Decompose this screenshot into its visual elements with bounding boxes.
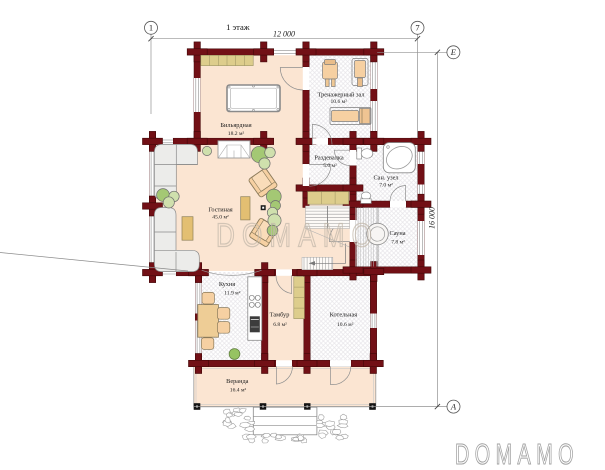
- svg-text:Тренажерный зал: Тренажерный зал: [318, 91, 365, 98]
- svg-text:Раздевалка: Раздевалка: [314, 155, 344, 162]
- svg-text:12 000: 12 000: [273, 29, 295, 38]
- svg-text:Сауна: Сауна: [390, 230, 406, 237]
- svg-text:Тамбур: Тамбур: [270, 311, 290, 318]
- svg-text:6.8 м²: 6.8 м²: [273, 322, 287, 328]
- svg-text:1: 1: [149, 23, 153, 33]
- svg-text:DOMAMO: DOMAMO: [216, 217, 379, 254]
- svg-text:Котельная: Котельная: [330, 311, 358, 318]
- svg-text:E: E: [450, 47, 457, 57]
- svg-text:18.2 м²: 18.2 м²: [228, 131, 245, 137]
- svg-text:16 000: 16 000: [428, 207, 437, 229]
- svg-text:5.0 м²: 5.0 м²: [323, 163, 337, 169]
- svg-text:7.8 м²: 7.8 м²: [391, 239, 405, 245]
- svg-text:10.6 м²: 10.6 м²: [337, 322, 354, 328]
- svg-text:Бильярдная: Бильярдная: [220, 122, 251, 129]
- svg-text:11.9 м²: 11.9 м²: [224, 291, 241, 297]
- svg-text:Гостиная: Гостиная: [208, 206, 232, 213]
- svg-text:1 этаж: 1 этаж: [226, 22, 250, 32]
- svg-text:16.4 м²: 16.4 м²: [230, 387, 247, 393]
- svg-text:Сан. узел: Сан. узел: [373, 175, 398, 182]
- svg-text:Кухня: Кухня: [219, 281, 235, 288]
- svg-text:10.6 м²: 10.6 м²: [330, 99, 347, 105]
- svg-text:7: 7: [415, 23, 419, 33]
- svg-text:A: A: [450, 402, 457, 412]
- svg-text:Веранда: Веранда: [226, 378, 249, 385]
- svg-text:7.0 м²: 7.0 м²: [379, 183, 393, 189]
- svg-text:DOMAMO: DOMAMO: [455, 439, 579, 470]
